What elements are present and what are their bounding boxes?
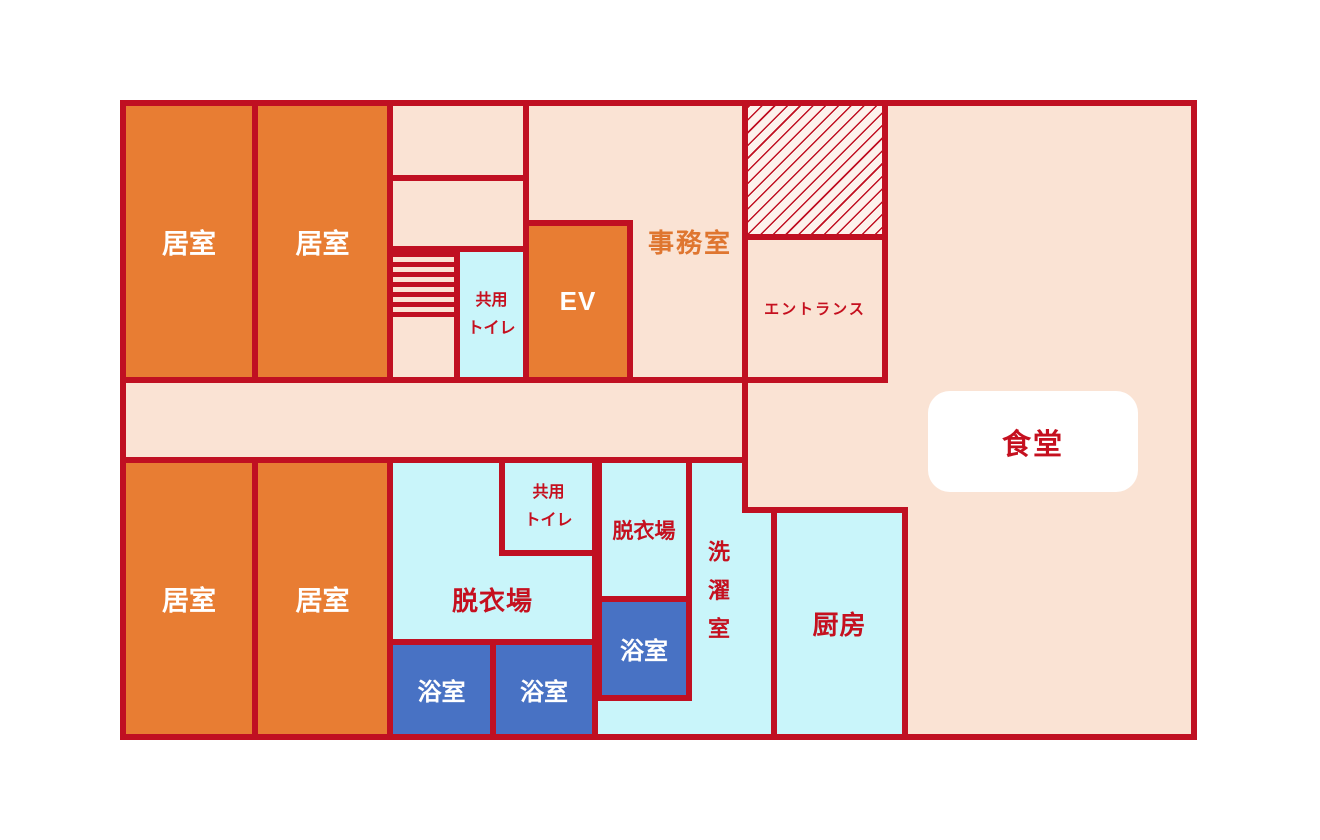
living-room-1-label: 居室 [162, 222, 216, 261]
bathroom-2-label: 浴室 [520, 672, 568, 707]
bathroom-1: 浴室 [387, 639, 496, 740]
living-room-4-label: 居室 [296, 579, 350, 618]
unlabeled-room-top-2 [387, 175, 529, 252]
laundry-room-label: 洗濯室 [701, 540, 733, 656]
unlabeled-room-top-1 [387, 100, 529, 181]
bathroom-3-label: 浴室 [620, 631, 668, 666]
corridor [126, 383, 742, 457]
elevator: EV [523, 220, 633, 383]
kitchen: 厨房 [771, 507, 908, 740]
wall-laundry-top [687, 457, 748, 463]
bathroom-1-label: 浴室 [418, 672, 466, 707]
bathroom-2: 浴室 [490, 639, 598, 740]
entrance: エントランス [742, 234, 888, 383]
changing-room-small: 脱衣場 [596, 457, 692, 602]
laundry-room-label-wrap: 洗濯室 [690, 518, 744, 678]
office-label: 事務室 [620, 223, 760, 260]
living-room-3: 居室 [120, 457, 258, 740]
living-room-2-label: 居室 [296, 222, 350, 261]
wall-dining-left [742, 383, 748, 513]
floor-plan: 居室 居室 共用トイレ EV エントランス 事務室 居室 居室 脱衣場 共用トイ… [0, 0, 1320, 840]
laundry-room-extension [742, 513, 771, 734]
dining-label-text: 食堂 [1002, 421, 1064, 463]
living-room-4: 居室 [252, 457, 393, 740]
elevator-label: EV [560, 286, 597, 317]
kitchen-label: 厨房 [812, 605, 866, 642]
living-room-2: 居室 [252, 100, 393, 383]
changing-room-small-label: 脱衣場 [613, 515, 676, 545]
shared-toilet-upper: 共用トイレ [454, 246, 529, 383]
staircase [387, 246, 460, 383]
stairs-steps-icon [393, 252, 454, 321]
dining-label: 食堂 [928, 391, 1138, 492]
hatched-area [742, 100, 888, 240]
living-room-1: 居室 [120, 100, 258, 383]
wet-area-passage [598, 701, 692, 734]
shared-toilet-lower: 共用トイレ [499, 457, 598, 556]
bathroom-3: 浴室 [596, 596, 692, 701]
changing-room-large-label: 脱衣場 [393, 581, 592, 618]
entrance-label: エントランス [764, 298, 866, 319]
shared-toilet-upper-label: 共用トイレ [467, 287, 515, 341]
living-room-3-label: 居室 [162, 579, 216, 618]
shared-toilet-lower-label: 共用トイレ [524, 479, 572, 533]
